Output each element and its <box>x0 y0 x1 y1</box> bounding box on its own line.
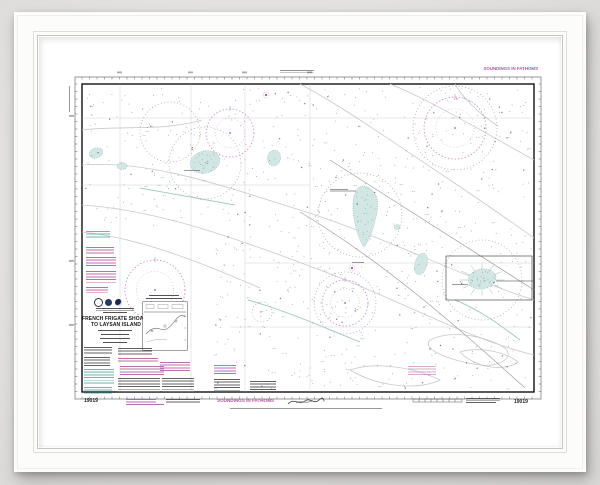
picture-frame <box>14 12 586 472</box>
photo-of-framed-chart: SOUNDINGS IN FATHOMS FRENCH FRIGATE SHOA… <box>0 0 600 485</box>
mat-board <box>39 37 561 447</box>
